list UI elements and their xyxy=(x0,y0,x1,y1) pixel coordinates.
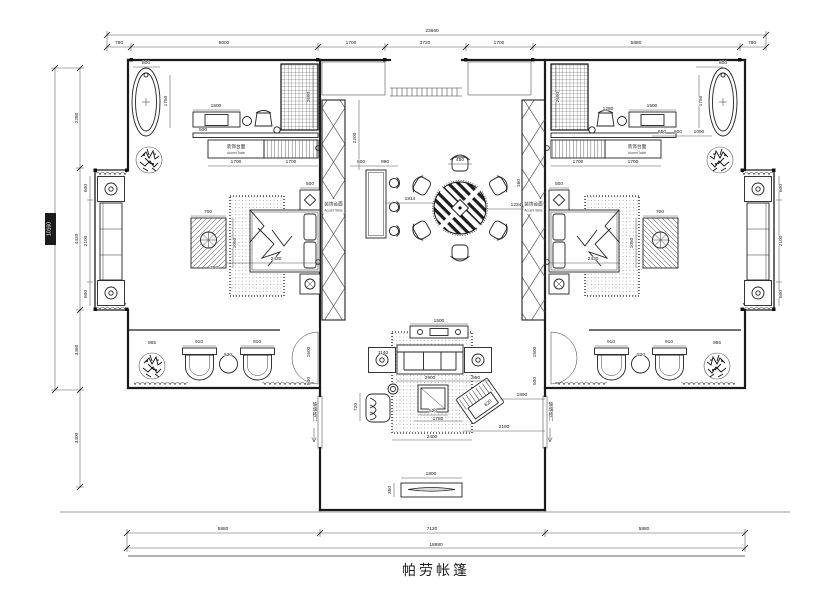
svg-text:Accent Table: Accent Table xyxy=(227,151,245,155)
dim-label: 700 xyxy=(656,209,664,215)
dim-label: 965 xyxy=(148,340,156,346)
accent-table-label: 装饰台面 xyxy=(324,201,343,208)
svg-text:3400: 3400 xyxy=(74,432,80,443)
dim-label: 500 xyxy=(555,181,563,187)
dim-label: 1700 xyxy=(231,159,242,165)
dining-table xyxy=(409,155,510,261)
glass-door-left xyxy=(318,396,322,448)
dim-label: 800 xyxy=(142,60,150,66)
dim-label: 990 xyxy=(381,159,389,165)
dim-label: 950 xyxy=(472,375,480,381)
accent-table-label: 装饰台面 xyxy=(227,143,246,150)
side-table-right xyxy=(465,348,492,373)
tv-console xyxy=(401,483,462,497)
svg-text:Accent Table: Accent Table xyxy=(628,151,646,155)
bottom-total: 18880 xyxy=(429,542,443,548)
dim-label: 1780 xyxy=(433,416,444,422)
outer-walls xyxy=(60,58,790,512)
dim-label: 500 xyxy=(306,181,314,187)
dim-label: 520 xyxy=(224,352,232,358)
dim-label: 2100 xyxy=(778,235,784,246)
accent-table-label: 装饰台面 xyxy=(628,143,647,150)
sofa-console xyxy=(410,326,468,338)
dim-label: 1234 xyxy=(511,202,522,208)
dim-label: 2430 xyxy=(588,256,599,262)
dim-label: 1800 xyxy=(426,471,437,477)
dim-label: 1280 xyxy=(603,106,614,112)
sofa xyxy=(397,345,463,374)
dim-label: 600 xyxy=(778,184,784,192)
dim-label: 2430 xyxy=(271,256,282,262)
dim-label: 1050 xyxy=(629,237,635,248)
glass-door-note-left: 玻璃移门 xyxy=(312,401,317,422)
coffee-table xyxy=(418,385,448,412)
dim-label: 600 xyxy=(83,290,89,298)
svg-text:5880: 5880 xyxy=(639,526,650,532)
dim-label: 350 xyxy=(387,486,393,494)
dim-label: 1500 xyxy=(532,346,538,357)
dim-label: 910 xyxy=(195,339,203,345)
right-wing-furniture-mirror xyxy=(549,64,776,386)
svg-text:Accent Table: Accent Table xyxy=(524,209,542,213)
bar-console xyxy=(366,170,400,238)
dim-label: 520 xyxy=(637,352,645,358)
dim-label: 2400 xyxy=(427,434,438,440)
dim-label: 600 xyxy=(778,290,784,298)
dim-label: 600 xyxy=(83,184,89,192)
svg-text:6000: 6000 xyxy=(219,40,230,46)
svg-text:1700: 1700 xyxy=(346,40,357,46)
svg-text:7120: 7120 xyxy=(427,526,438,532)
dim-label: 800 xyxy=(719,60,727,66)
dim-label: 2100 xyxy=(83,235,89,246)
glass-door-note-right: 玻璃移门 xyxy=(548,401,553,422)
dim-label: 910 xyxy=(665,339,673,345)
top-total: 23660 xyxy=(425,28,439,34)
accent-table-label: 装饰台面 xyxy=(524,201,543,208)
dim-label: 2690 xyxy=(555,91,561,102)
drawing-title: 帕劳帐篷 xyxy=(402,563,470,579)
dim-label: 500 xyxy=(532,377,538,385)
dim-label: 650 xyxy=(658,129,666,135)
dim-label: 2190 xyxy=(499,424,510,430)
svg-text:780: 780 xyxy=(115,40,123,46)
svg-text:Accent Table: Accent Table xyxy=(324,209,342,213)
svg-text:780: 780 xyxy=(748,40,756,46)
dim-label: 1090 xyxy=(694,129,705,135)
svg-text:5880: 5880 xyxy=(631,40,642,46)
dim-label: 1750 xyxy=(163,95,169,106)
dim-label: 910 xyxy=(253,339,261,345)
dim-label: 1500 xyxy=(306,346,312,357)
glass-door-right xyxy=(543,396,547,448)
dim-label: 390 xyxy=(210,265,218,271)
dim-label: 965 xyxy=(713,340,721,346)
dim-label: 1140 xyxy=(378,350,389,356)
dim-label: 160 xyxy=(516,179,522,187)
dim-label: 500 xyxy=(199,127,207,133)
dim-label: 1050 xyxy=(232,237,238,248)
dim-label: 910 xyxy=(607,339,615,345)
entry-porch xyxy=(322,62,531,96)
dim-label: 1700 xyxy=(286,159,297,165)
dim-label: 2690 xyxy=(306,91,312,102)
dim-label: 500 xyxy=(306,377,312,385)
dim-label: 720 xyxy=(353,403,359,411)
dim-label: 600 xyxy=(674,129,682,135)
dim-label: 2200 xyxy=(352,132,358,143)
dim-label: 1814 xyxy=(405,196,416,202)
dim-label: 1890 xyxy=(517,392,528,398)
central-hall xyxy=(316,100,550,320)
svg-text:1700: 1700 xyxy=(494,40,505,46)
dim-label: 1700 xyxy=(628,159,639,165)
dim-label: 520 xyxy=(429,408,437,414)
left-total: 10160 xyxy=(47,222,53,236)
floor-plan-svg: 23660 780 6000 1700 3720 1700 5880 780 1… xyxy=(0,0,837,592)
floor-plan-page: 23660 780 6000 1700 3720 1700 5880 780 1… xyxy=(0,0,837,592)
dim-label: 450 xyxy=(456,157,464,163)
dim-label: 600 xyxy=(357,159,365,165)
dim-label: 1750 xyxy=(698,95,704,106)
svg-text:4420: 4420 xyxy=(74,233,80,244)
svg-text:5880: 5880 xyxy=(218,526,229,532)
dim-label: 2900 xyxy=(425,375,436,381)
title-block: 帕劳帐篷 xyxy=(128,556,745,579)
dim-label: 1500 xyxy=(211,103,222,109)
dim-label: 1500 xyxy=(434,318,445,324)
svg-text:3460: 3460 xyxy=(74,344,80,355)
dim-label: 1700 xyxy=(573,159,584,165)
dim-label: 1500 xyxy=(647,103,658,109)
svg-text:3720: 3720 xyxy=(420,40,431,46)
svg-text:2280: 2280 xyxy=(74,112,80,123)
dim-label: 700 xyxy=(204,209,212,215)
